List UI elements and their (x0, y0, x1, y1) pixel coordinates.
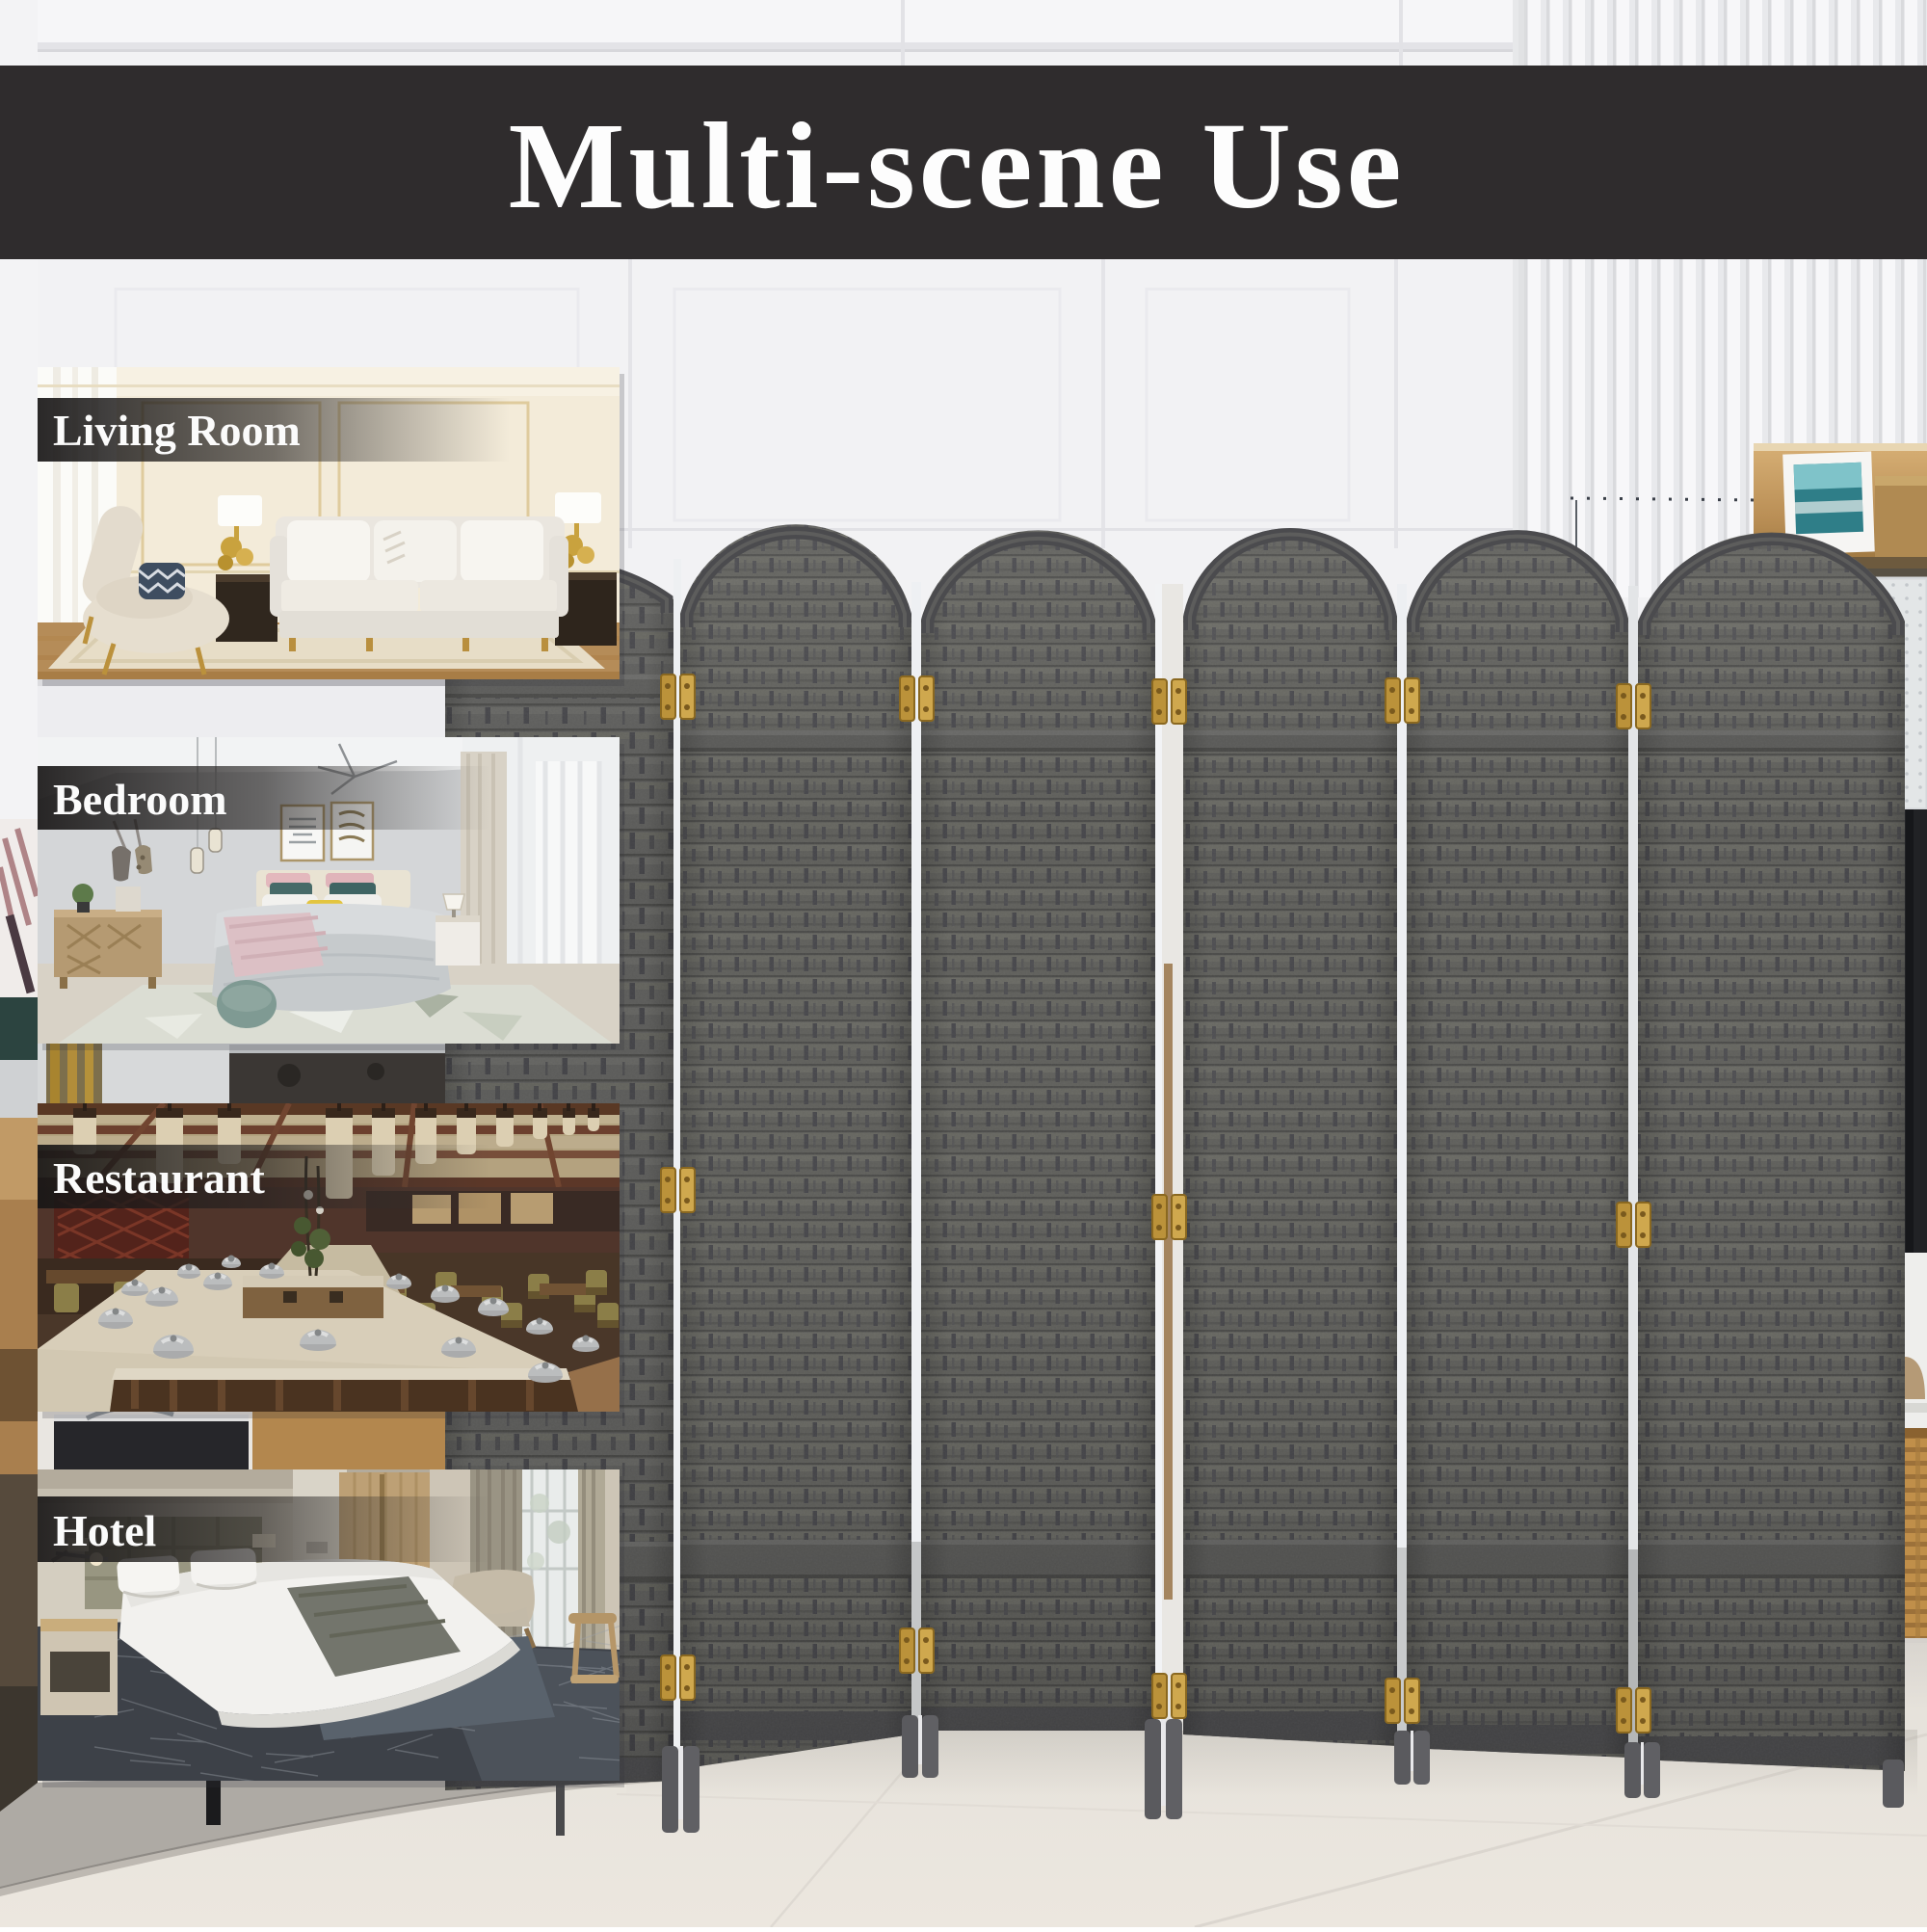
svg-text:Living Room: Living Room (53, 406, 301, 455)
svg-text:Bedroom: Bedroom (53, 775, 227, 824)
svg-text:Restaurant: Restaurant (53, 1153, 265, 1203)
svg-text:Hotel: Hotel (53, 1506, 156, 1555)
svg-text:Multi-scene Use: Multi-scene Use (509, 97, 1406, 234)
